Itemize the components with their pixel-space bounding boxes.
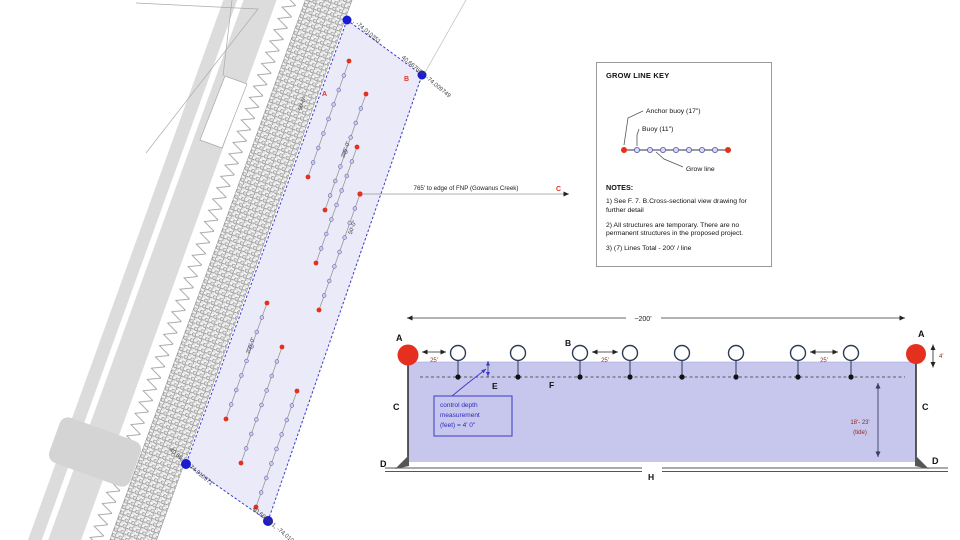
site-plan-and-section-drawing: 50'-0" 200'-0" 50'-0" 200'-0" 765' to ed…: [0, 0, 960, 540]
section-d-left: D: [380, 459, 387, 469]
section-b: B: [565, 338, 571, 348]
control-depth-line1: control depth: [440, 402, 478, 409]
anchor-buoy-dot: [357, 191, 362, 196]
section-h: H: [648, 472, 654, 482]
note-1: 1) See F. 7. B.Cross-sectional view draw…: [606, 198, 764, 216]
seabed-lines: [385, 468, 948, 472]
tide-range-label: 18'- 23': [850, 420, 869, 426]
spacing-label: 25': [820, 358, 828, 364]
anchor-buoy-icon: [725, 147, 731, 153]
buoy-label: Buoy (11"): [642, 126, 673, 133]
spacing-label: 25': [601, 358, 609, 364]
tide-range-label2: (tide): [853, 430, 867, 436]
point-c-label: C: [556, 186, 561, 193]
section-c-left: C: [393, 402, 400, 412]
section-a-right: A: [918, 329, 925, 339]
span-label: ~200': [634, 316, 651, 323]
key-diagram: Anchor buoy (17") Buoy (11") Grow line: [606, 82, 762, 177]
cross-section: ~200' 25' 25' 25' 4': [380, 316, 948, 482]
note-2: 2) All structures are temporary. There a…: [606, 222, 764, 240]
anchor-buoy-label: Anchor buoy (17"): [646, 108, 701, 115]
control-depth-line3: (feet) = 4' 0": [440, 422, 476, 429]
bottom-anchor-icon: [395, 455, 409, 469]
key-title: GROW LINE KEY: [606, 71, 764, 80]
corner-dot-nw: [343, 16, 352, 25]
buoy-height-label: 4': [939, 354, 943, 360]
section-a-left: A: [396, 333, 403, 343]
section-c-right: C: [922, 402, 929, 412]
distance-label: 765' to edge of FNP (Gowanus Creek): [414, 185, 519, 192]
coord-se: 40.666091, -74.010: [251, 506, 295, 540]
section-d-right: D: [932, 456, 939, 466]
note-3: 3) (7) Lines Total - 200' / line: [606, 245, 764, 254]
bottom-anchor-icon: [915, 455, 929, 469]
drawing-sheet: 50'-0" 200'-0" 50'-0" 200'-0" 765' to ed…: [0, 0, 960, 540]
spacing-label: 25': [430, 358, 438, 364]
grow-line-key-panel: GROW LINE KEY Anchor buoy (17") Buoy (11…: [596, 62, 772, 267]
point-a-label: A: [322, 91, 327, 98]
point-b-label: B: [404, 76, 409, 83]
anchor-buoy-icon: [398, 345, 419, 366]
anchor-buoy-icon: [906, 344, 926, 364]
anchor-buoy-icon: [621, 147, 627, 153]
notes-heading: NOTES:: [606, 183, 764, 192]
control-depth-line2: measurement: [440, 412, 480, 419]
grow-line-label: Grow line: [686, 166, 715, 173]
distance-callout: 765' to edge of FNP (Gowanus Creek) C: [357, 185, 569, 197]
section-e: E: [492, 381, 498, 391]
section-f: F: [549, 380, 554, 390]
